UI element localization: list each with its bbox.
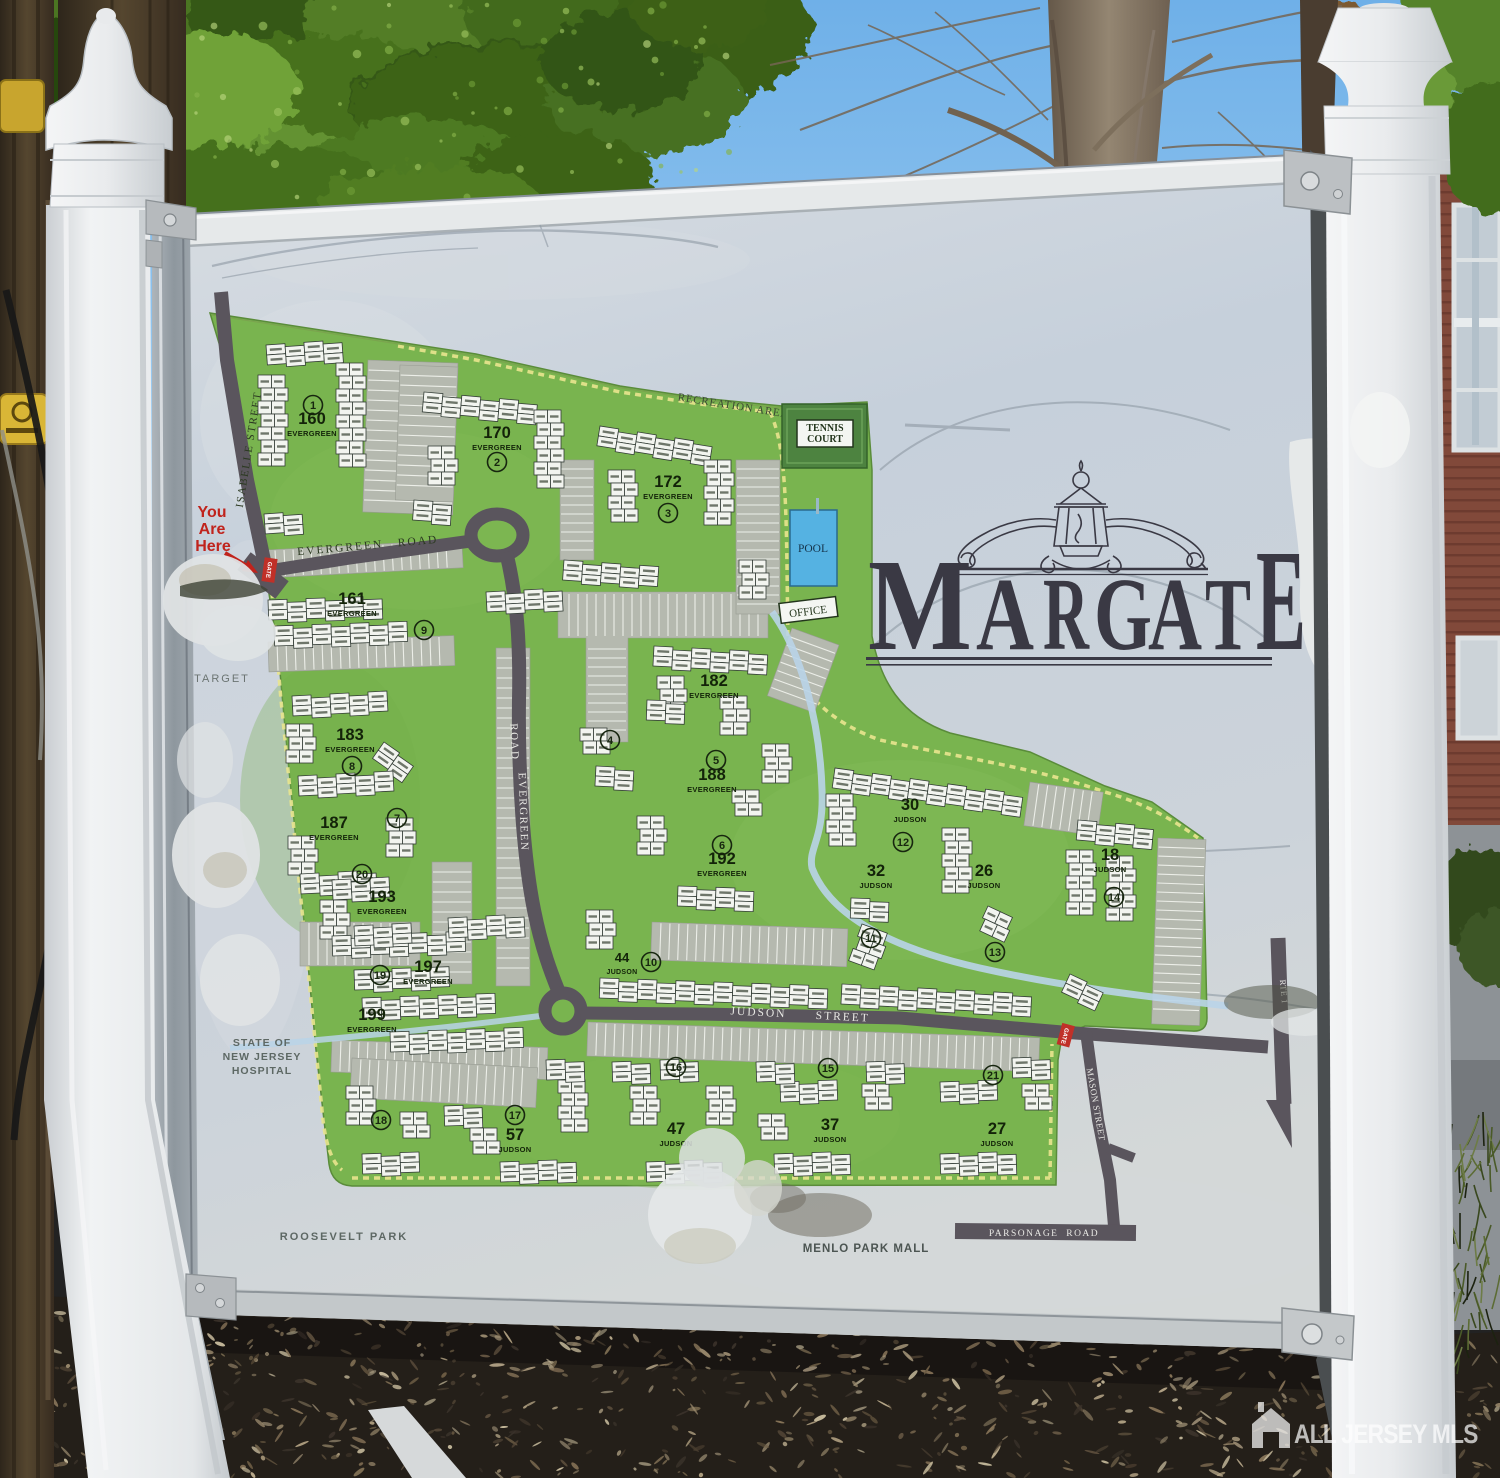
svg-text:37: 37	[821, 1116, 839, 1134]
svg-text:ROAD: ROAD	[507, 723, 520, 761]
svg-text:T: T	[1205, 557, 1251, 673]
svg-text:183: 183	[336, 726, 364, 744]
svg-text:172: 172	[654, 473, 682, 491]
svg-text:STATE OF: STATE OF	[233, 1037, 291, 1049]
svg-text:You: You	[197, 504, 226, 521]
svg-text:12: 12	[897, 837, 909, 849]
svg-text:11: 11	[865, 933, 877, 945]
svg-text:JUDSON: JUDSON	[1093, 865, 1126, 874]
svg-text:HOSPITAL: HOSPITAL	[232, 1065, 292, 1077]
svg-text:EVERGREEN: EVERGREEN	[325, 745, 375, 754]
svg-text:COURT: COURT	[807, 434, 843, 445]
svg-text:M: M	[868, 533, 972, 678]
svg-text:EVERGREEN: EVERGREEN	[403, 977, 453, 986]
svg-text:19: 19	[374, 970, 386, 982]
svg-text:JUDSON: JUDSON	[893, 815, 926, 824]
svg-text:ALL JERSEY MLS: ALL JERSEY MLS	[1294, 1419, 1478, 1449]
svg-text:TENNIS: TENNIS	[806, 423, 844, 434]
svg-text:20: 20	[356, 869, 368, 881]
svg-text:9: 9	[421, 625, 427, 637]
svg-text:R: R	[1043, 556, 1090, 672]
svg-text:EVERGREEN: EVERGREEN	[347, 1025, 397, 1034]
svg-text:A: A	[1148, 556, 1202, 672]
svg-text:161: 161	[338, 590, 366, 608]
svg-text:JUDSON: JUDSON	[607, 969, 638, 976]
svg-text:192: 192	[708, 850, 736, 868]
svg-text:EVERGREEN: EVERGREEN	[327, 609, 377, 618]
svg-text:NEW JERSEY: NEW JERSEY	[223, 1051, 302, 1063]
svg-text:EVERGREEN: EVERGREEN	[689, 691, 739, 700]
svg-text:187: 187	[320, 814, 348, 832]
svg-text:JUDSON: JUDSON	[498, 1145, 531, 1154]
svg-text:47: 47	[667, 1120, 685, 1138]
svg-text:57: 57	[506, 1126, 524, 1144]
svg-text:26: 26	[975, 862, 993, 880]
svg-text:E: E	[1256, 520, 1306, 681]
svg-text:JUDSON: JUDSON	[859, 881, 892, 890]
svg-text:199: 199	[358, 1006, 386, 1024]
svg-text:3: 3	[665, 508, 671, 520]
svg-text:JUDSON: JUDSON	[967, 881, 1000, 890]
svg-text:10: 10	[645, 957, 657, 969]
svg-text:188: 188	[698, 766, 726, 784]
svg-text:32: 32	[867, 862, 885, 880]
svg-text:EVERGREEN: EVERGREEN	[309, 833, 359, 842]
svg-text:G: G	[1094, 556, 1152, 672]
svg-text:EVERGREEN: EVERGREEN	[687, 785, 737, 794]
svg-text:EVERGREEN: EVERGREEN	[643, 492, 693, 501]
svg-text:160: 160	[298, 410, 326, 428]
svg-text:JUDSON: JUDSON	[980, 1139, 1013, 1148]
svg-text:21: 21	[987, 1070, 999, 1082]
svg-text:POOL: POOL	[798, 543, 828, 555]
svg-text:8: 8	[349, 761, 355, 773]
svg-text:14: 14	[1108, 892, 1121, 904]
svg-text:44: 44	[615, 950, 630, 965]
svg-text:193: 193	[368, 888, 396, 906]
svg-text:17: 17	[509, 1110, 521, 1122]
svg-text:4: 4	[607, 735, 614, 747]
svg-text:30: 30	[901, 796, 919, 814]
svg-text:Are: Are	[199, 521, 226, 538]
svg-text:15: 15	[822, 1063, 834, 1075]
svg-text:EVERGREEN: EVERGREEN	[357, 907, 407, 916]
svg-text:JUDSON: JUDSON	[813, 1135, 846, 1144]
svg-text:27: 27	[988, 1120, 1006, 1138]
svg-text:TARGET: TARGET	[194, 673, 250, 685]
svg-text:170: 170	[483, 424, 511, 442]
svg-text:2: 2	[494, 457, 500, 469]
svg-text:197: 197	[414, 958, 442, 976]
svg-text:18: 18	[375, 1115, 387, 1127]
svg-text:EVERGREEN: EVERGREEN	[697, 869, 747, 878]
svg-text:EVERGREEN: EVERGREEN	[472, 443, 522, 452]
svg-text:182: 182	[700, 672, 728, 690]
svg-text:PARSONAGE ROAD: PARSONAGE ROAD	[989, 1229, 1099, 1239]
svg-text:MENLO PARK MALL: MENLO PARK MALL	[803, 1243, 930, 1255]
svg-text:7: 7	[394, 813, 400, 825]
svg-text:18: 18	[1101, 846, 1119, 864]
svg-text:EVERGREEN: EVERGREEN	[287, 429, 337, 438]
svg-text:ROOSEVELT PARK: ROOSEVELT PARK	[280, 1231, 408, 1243]
svg-text:A: A	[976, 557, 1034, 672]
svg-text:13: 13	[989, 947, 1001, 959]
svg-text:16: 16	[670, 1062, 682, 1074]
